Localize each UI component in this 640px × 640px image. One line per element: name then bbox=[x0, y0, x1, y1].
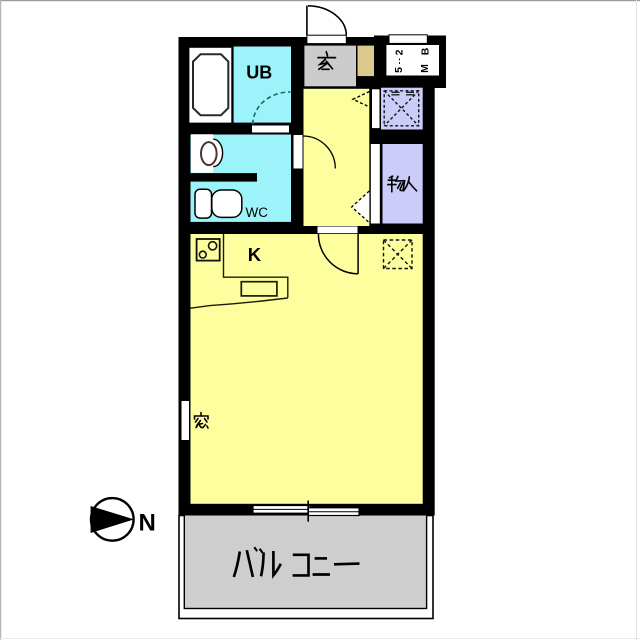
svg-text:5: 5 bbox=[393, 67, 405, 73]
svg-text:WC: WC bbox=[246, 205, 269, 220]
svg-text:K: K bbox=[248, 244, 262, 265]
svg-text:N: N bbox=[139, 510, 156, 537]
svg-text:2: 2 bbox=[394, 49, 406, 55]
svg-text:B: B bbox=[420, 47, 432, 55]
svg-text:M: M bbox=[419, 64, 431, 73]
svg-text:UB: UB bbox=[246, 62, 272, 82]
